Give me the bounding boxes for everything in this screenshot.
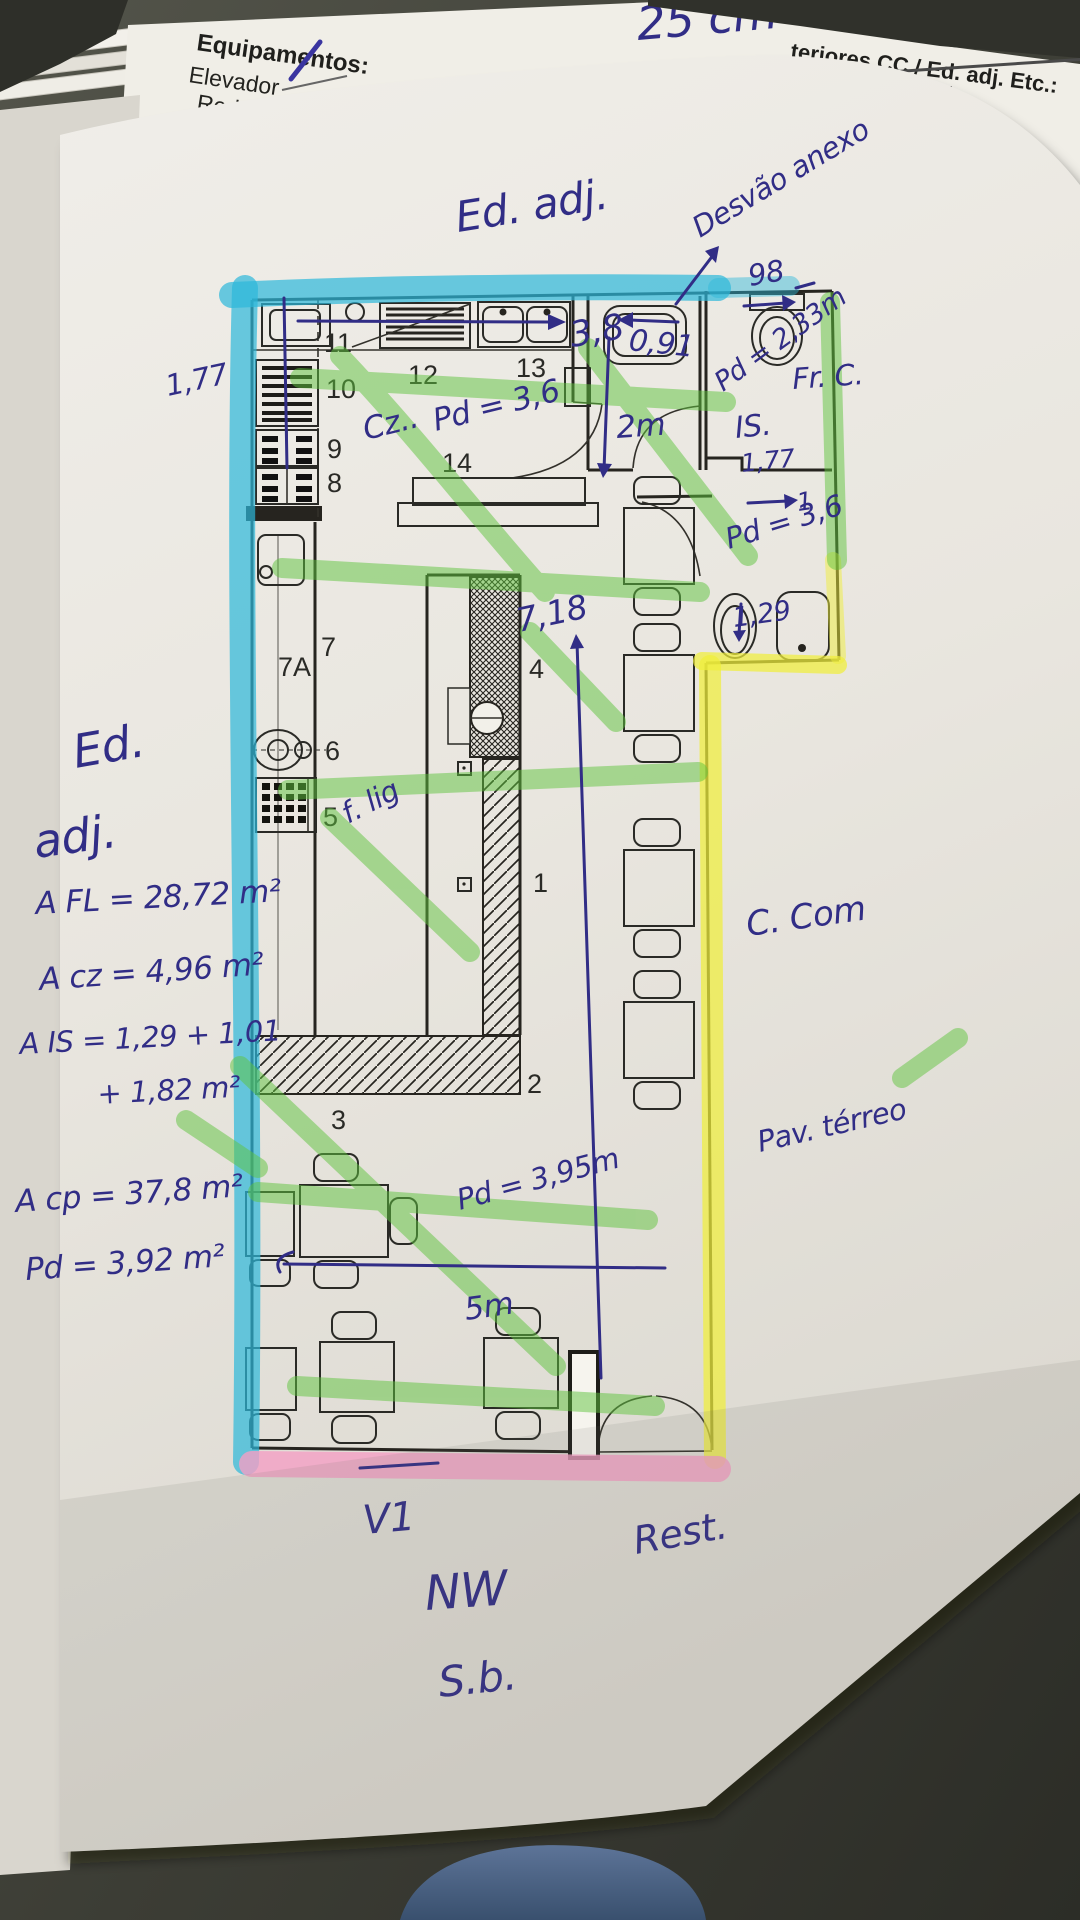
annotation-dim-177-right: 1,77 [740, 443, 797, 478]
room-label-1: 1 [533, 868, 548, 898]
annotation-dim-2m: 2m [615, 407, 666, 446]
room-label-8: 8 [327, 468, 342, 498]
room-label-7a: 7A [278, 652, 311, 682]
room-label-9: 9 [327, 434, 342, 464]
room-label-6: 6 [325, 736, 340, 766]
annotation-dim-091: 0,91 [627, 323, 695, 365]
highlight-cyan-top [232, 287, 718, 295]
room-label-2: 2 [527, 1069, 542, 1099]
annotation-is-label: IS. [733, 407, 772, 446]
highlight-yellow-wing-corner [833, 560, 838, 656]
room-label-7: 7 [321, 632, 336, 662]
highlight-yellow-right [710, 666, 715, 1458]
annotation-ed-left-2: adj. [30, 804, 120, 869]
annotation-dim-98: 98 [745, 253, 786, 293]
annotation-fr-c: Fr. C. [791, 357, 864, 396]
bar-counter-hatched [256, 1036, 520, 1094]
highlight-yellow-wing-bottom [702, 661, 838, 665]
room-label-3: 3 [331, 1105, 346, 1135]
annotation-dim-5m: 5m [462, 1285, 515, 1327]
photo-of-floor-plan: Equipamentos: Elevador Rede de G teriore… [0, 0, 1080, 1920]
